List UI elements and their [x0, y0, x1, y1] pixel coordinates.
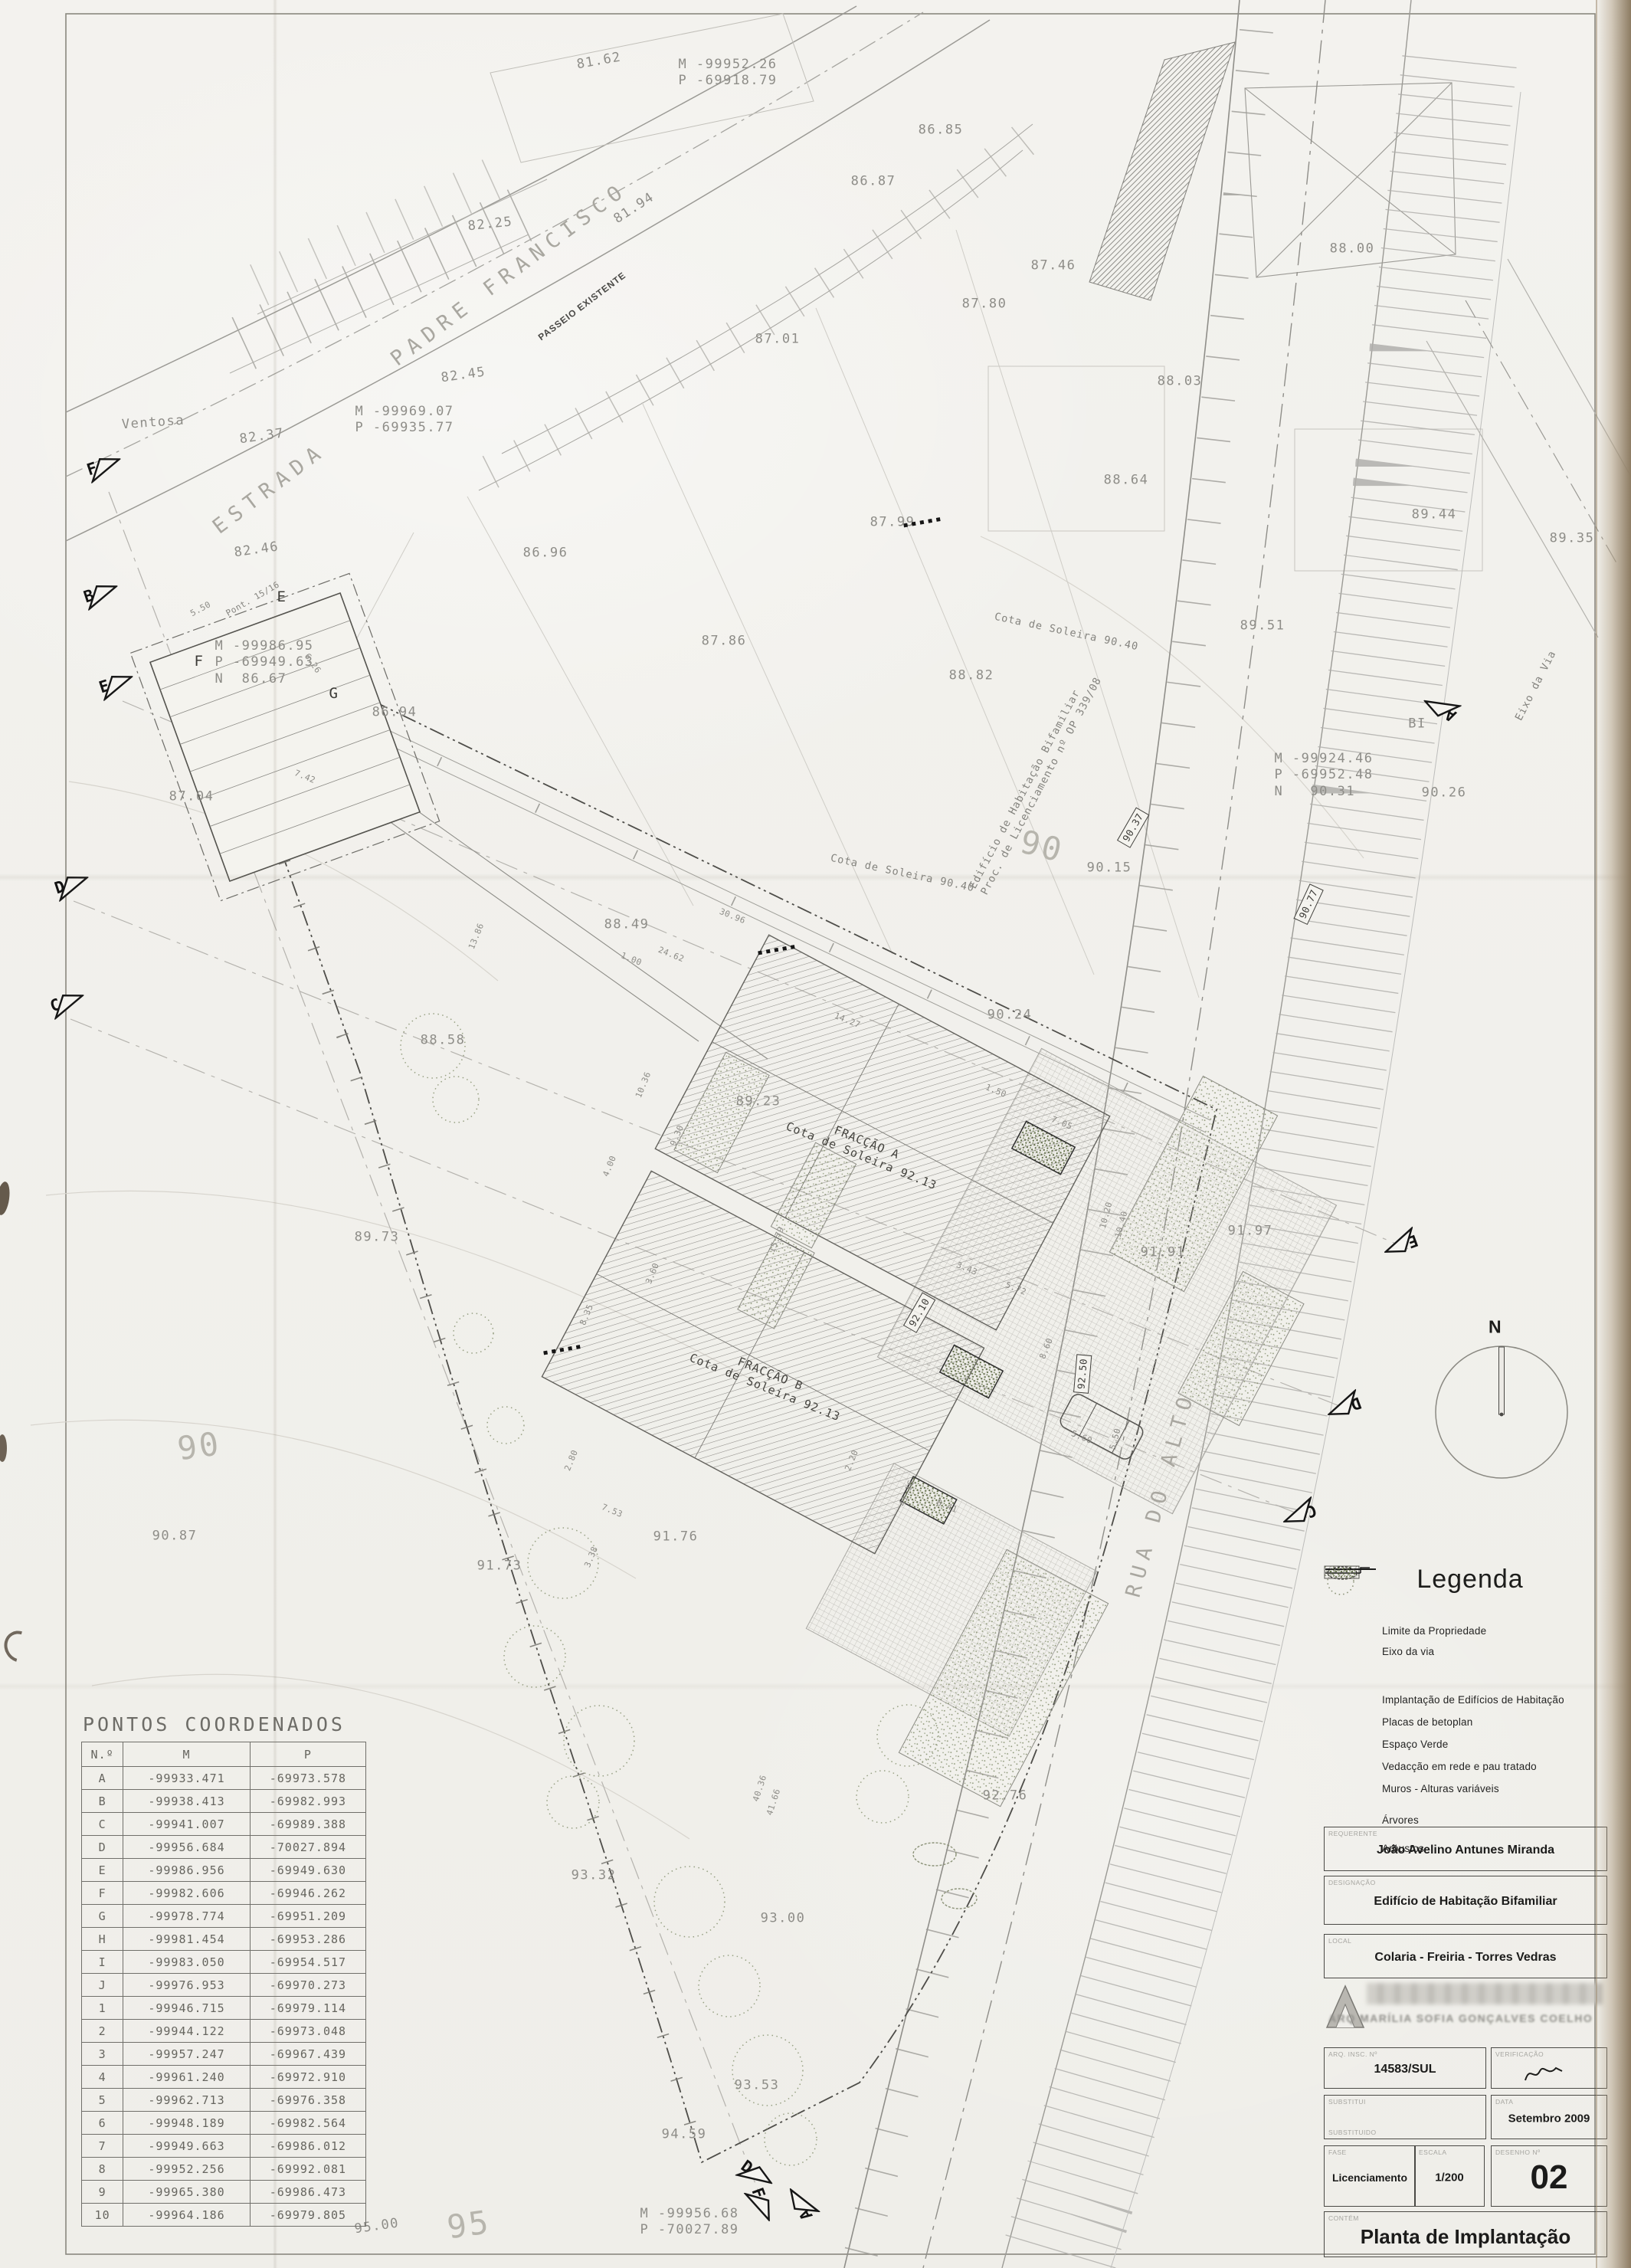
points-col-p: P	[250, 1742, 365, 1767]
scan-shadow-edge	[1596, 0, 1631, 2268]
plan-label: M -99952.26 P -69918.79	[678, 57, 777, 90]
table-cell: -69992.081	[250, 2158, 365, 2181]
plan-label: 91.73	[477, 1558, 522, 1574]
plan-label: G	[329, 685, 339, 703]
plan-label: 89.23	[736, 1093, 781, 1109]
plan-label: M -99956.68 P -70027.89	[640, 2206, 739, 2239]
north-arrow	[1436, 1346, 1567, 1478]
table-cell: -99965.380	[123, 2181, 251, 2204]
requerente-label: REQUERENTE	[1328, 1830, 1377, 1837]
table-cell: -70027.894	[250, 1836, 365, 1859]
requerente-box: REQUERENTE João Avelino Antunes Miranda	[1324, 1827, 1607, 1871]
table-row: 9-99965.380-69986.473	[82, 2181, 366, 2204]
table-row: 3-99957.247-69967.439	[82, 2043, 366, 2066]
plan-label: 93.32	[572, 1867, 617, 1883]
table-cell: -99961.240	[123, 2066, 251, 2089]
legend-item-label: Eixo da via	[1382, 1646, 1434, 1657]
plan-label: 87.04	[169, 788, 215, 805]
table-cell: -99952.256	[123, 2158, 251, 2181]
legend-item: Implantação de Edifícios de Habitação	[1324, 1690, 1616, 1710]
plan-label: M -99924.46 P -69952.48 N 90.31	[1274, 751, 1373, 800]
designacao-box: DESIGNAÇÃO Edifício de Habitação Bifamil…	[1324, 1876, 1607, 1925]
verificacao-label: VERIFICAÇÃO	[1495, 2050, 1544, 2058]
architect-stamp-name: ARQ MARÍLIA SOFIA GONÇALVES COELHO	[1328, 2012, 1604, 2024]
legend-item: Vedacção em rede e pau tratado	[1324, 1756, 1616, 1777]
arq-insc-value: 14583/SUL	[1325, 2063, 1485, 2076]
escala-label: ESCALA	[1419, 2148, 1447, 2156]
table-row: 4-99961.240-69972.910	[82, 2066, 366, 2089]
plan-label: 89.44	[1412, 506, 1457, 523]
plan-label: 87.86	[702, 633, 747, 649]
desenho-box: DESENHO Nº 02	[1491, 2145, 1607, 2207]
plan-label: 91.76	[653, 1529, 699, 1545]
escala-value: 1/200	[1415, 2171, 1484, 2184]
table-cell: -99949.663	[123, 2135, 251, 2158]
points-table: N.º M P A-99933.471-69973.578B-99938.413…	[81, 1742, 366, 2227]
table-cell: 7	[82, 2135, 123, 2158]
table-cell: -69986.473	[250, 2181, 365, 2204]
plan-label: 86.87	[851, 173, 896, 189]
points-table-title: PONTOS COORDENADOS	[83, 1713, 366, 1735]
legend-item-label: Placas de betoplan	[1382, 1716, 1472, 1728]
legend-item-label: Vedacção em rede e pau tratado	[1382, 1761, 1537, 1772]
designacao-label: DESIGNAÇÃO	[1328, 1879, 1376, 1886]
table-cell: -99964.186	[123, 2204, 251, 2227]
plan-label: 86.96	[523, 545, 568, 561]
desenho-value: 02	[1492, 2158, 1606, 2197]
plan-label: 89.51	[1240, 618, 1285, 634]
table-cell: 3	[82, 2043, 123, 2066]
sidewalk-passeio	[479, 124, 1033, 490]
plan-label: BI	[1408, 716, 1426, 732]
plan-label: 88.58	[421, 1032, 466, 1048]
contem-label: CONTÉM	[1328, 2214, 1359, 2222]
table-cell: -99941.007	[123, 1813, 251, 1836]
arq-insc-box: ARQ. INSC. Nº 14583/SUL	[1324, 2047, 1486, 2089]
table-cell: -69982.993	[250, 1790, 365, 1813]
plan-label: 87.46	[1031, 257, 1076, 274]
local-value: Colaria - Freiria - Torres Vedras	[1325, 1951, 1606, 1965]
verification-signature	[1519, 2059, 1573, 2085]
table-cell: -99957.247	[123, 2043, 251, 2066]
table-cell: F	[82, 1882, 123, 1905]
table-row: 10-99964.186-69979.805	[82, 2204, 366, 2227]
stamp-blurred-header	[1367, 1983, 1603, 2004]
plan-label: 90.24	[987, 1007, 1033, 1023]
plan-label: 91.91	[1141, 1244, 1186, 1260]
table-cell: 4	[82, 2066, 123, 2089]
plan-label: 88.64	[1104, 472, 1149, 488]
table-cell: A	[82, 1767, 123, 1790]
table-cell: 8	[82, 2158, 123, 2181]
table-row: 8-99952.256-69992.081	[82, 2158, 366, 2181]
table-cell: -99946.715	[123, 1997, 251, 2020]
requerente-value: João Avelino Antunes Miranda	[1325, 1844, 1606, 1857]
contem-value: Planta de Implantação	[1325, 2225, 1606, 2249]
table-cell: -69979.805	[250, 2204, 365, 2227]
table-row: J-99976.953-69970.273	[82, 1974, 366, 1997]
points-col-m: M	[123, 1742, 251, 1767]
points-col-n: N.º	[82, 1742, 123, 1767]
legend-item-label: Implantação de Edifícios de Habitação	[1382, 1694, 1564, 1706]
title-block: REQUERENTE João Avelino Antunes Miranda …	[1324, 1817, 1609, 2251]
table-cell: 5	[82, 2089, 123, 2112]
table-cell: -99944.122	[123, 2020, 251, 2043]
table-row: 1-99946.715-69979.114	[82, 1997, 366, 2020]
table-cell: -69972.910	[250, 2066, 365, 2089]
plan-label: 86.85	[919, 122, 964, 138]
table-cell: -69986.012	[250, 2135, 365, 2158]
legend-item: Eixo da via	[1324, 1641, 1616, 1662]
contem-box: CONTÉM Planta de Implantação	[1324, 2211, 1607, 2257]
table-cell: -69976.358	[250, 2089, 365, 2112]
fase-box: FASE Licenciamento	[1324, 2145, 1416, 2207]
fase-label: FASE	[1328, 2148, 1347, 2156]
table-row: 5-99962.713-69976.358	[82, 2089, 366, 2112]
plan-label: M -99969.07 P -69935.77	[355, 404, 454, 437]
table-cell: I	[82, 1951, 123, 1974]
table-cell: D	[82, 1836, 123, 1859]
plan-label: 89.73	[355, 1229, 400, 1245]
table-cell: H	[82, 1928, 123, 1951]
local-label: LOCAL	[1328, 1937, 1351, 1945]
plan-label: 95	[444, 2202, 493, 2248]
plan-label: F	[195, 653, 205, 671]
table-row: I-99983.050-69954.517	[82, 1951, 366, 1974]
plan-label: 91.97	[1228, 1223, 1273, 1239]
substituido-label: SUBSTITUIDO	[1328, 2129, 1377, 2136]
table-row: B-99938.413-69982.993	[82, 1790, 366, 1813]
table-cell: -69967.439	[250, 2043, 365, 2066]
plan-label: 87.80	[962, 296, 1007, 312]
substitui-box: SUBSTITUI SUBSTITUIDO	[1324, 2095, 1486, 2139]
plan-label: 93.53	[735, 2077, 780, 2093]
arq-insc-label: ARQ. INSC. Nº	[1328, 2050, 1377, 2058]
data-value: Setembro 2009	[1492, 2112, 1606, 2125]
paper-crease	[0, 1683, 1631, 1690]
table-row: F-99982.606-69946.262	[82, 1882, 366, 1905]
table-cell: -69989.388	[250, 1813, 365, 1836]
table-cell: 10	[82, 2204, 123, 2227]
plan-label: 90.26	[1422, 785, 1467, 801]
table-row: 7-99949.663-69986.012	[82, 2135, 366, 2158]
table-cell: 6	[82, 2112, 123, 2135]
plan-label: 94.59	[662, 2126, 707, 2142]
plan-label: 93.00	[761, 1910, 806, 1926]
paper-crease	[0, 873, 1631, 881]
legend-item: Espaço Verde	[1324, 1734, 1616, 1755]
plan-label: 88.82	[949, 667, 994, 683]
table-cell: 9	[82, 2181, 123, 2204]
plan-label: 88.49	[604, 916, 650, 932]
plan-label: 92.76	[983, 1788, 1028, 1804]
table-cell: -69979.114	[250, 1997, 365, 2020]
neighbour-buildings	[336, 14, 1482, 998]
legend-item: Placas de betoplan	[1324, 1712, 1616, 1732]
legend-item-label: Muros - Alturas variáveis	[1382, 1783, 1499, 1794]
table-cell: 2	[82, 2020, 123, 2043]
table-cell: C	[82, 1813, 123, 1836]
scanned-site-plan-sheet: 81.62M -99952.26 P -69918.7986.8586.8782…	[0, 0, 1631, 2268]
plan-label: 90	[175, 1424, 223, 1470]
plan-label: 90.87	[152, 1528, 198, 1544]
desenho-label: DESENHO Nº	[1495, 2148, 1541, 2156]
table-cell: -99981.454	[123, 1928, 251, 1951]
table-cell: -99933.471	[123, 1767, 251, 1790]
plan-label: N	[1489, 1316, 1502, 1339]
table-cell: -99948.189	[123, 2112, 251, 2135]
table-cell: -69973.048	[250, 2020, 365, 2043]
table-row: D-99956.684-70027.894	[82, 1836, 366, 1859]
table-cell: -99983.050	[123, 1951, 251, 1974]
local-box: LOCAL Colaria - Freiria - Torres Vedras	[1324, 1934, 1607, 1978]
plan-label: 88.00	[1330, 241, 1375, 257]
plan-label: 88.03	[1158, 373, 1203, 389]
table-cell: J	[82, 1974, 123, 1997]
data-label: DATA	[1495, 2098, 1513, 2106]
table-row: C-99941.007-69989.388	[82, 1813, 366, 1836]
table-cell: -99962.713	[123, 2089, 251, 2112]
table-row: G-99978.774-69951.209	[82, 1905, 366, 1928]
legend-item: Muros - Alturas variáveis	[1324, 1778, 1616, 1799]
plan-label: 87.01	[755, 331, 801, 347]
legend-item: Limite da Propriedade	[1324, 1621, 1616, 1641]
table-cell: -99978.774	[123, 1905, 251, 1928]
plan-label: E	[277, 588, 287, 607]
table-row: H-99981.454-69953.286	[82, 1928, 366, 1951]
data-box: DATA Setembro 2009	[1491, 2095, 1607, 2139]
legend-item-label: Limite da Propriedade	[1382, 1625, 1486, 1637]
table-cell: -69970.273	[250, 1974, 365, 1997]
table-cell: B	[82, 1790, 123, 1813]
table-cell: -69982.564	[250, 2112, 365, 2135]
table-cell: G	[82, 1905, 123, 1928]
table-cell: E	[82, 1859, 123, 1882]
fase-value: Licenciamento	[1325, 2171, 1415, 2184]
designacao-value: Edifício de Habitação Bifamiliar	[1325, 1895, 1606, 1909]
table-cell: -99976.953	[123, 1974, 251, 1997]
table-cell: -99956.684	[123, 1836, 251, 1859]
table-cell: -99938.413	[123, 1790, 251, 1813]
verificacao-box: VERIFICAÇÃO	[1491, 2047, 1607, 2089]
paper-fold	[273, 0, 277, 2268]
table-cell: 1	[82, 1997, 123, 2020]
table-cell: -69953.286	[250, 1928, 365, 1951]
plan-label: 89.35	[1550, 530, 1595, 546]
existing-building-stairs	[130, 573, 439, 900]
table-cell: -99986.956	[123, 1859, 251, 1882]
plan-label: M -99986.95 P -69949.63 N 86.67	[215, 638, 313, 687]
shrubs	[913, 1843, 977, 1909]
escala-box: ESCALA 1/200	[1414, 2145, 1485, 2207]
legend-panel: Legenda Limite da PropriedadeEixo da via…	[1324, 1565, 1616, 1859]
table-row: A-99933.471-69973.578	[82, 1767, 366, 1790]
substitui-label: SUBSTITUI	[1328, 2098, 1366, 2106]
table-row: E-99986.956-69949.630	[82, 1859, 366, 1882]
table-cell: -99982.606	[123, 1882, 251, 1905]
table-cell: -69951.209	[250, 1905, 365, 1928]
plan-label: 86.94	[372, 704, 418, 720]
table-row: 6-99948.189-69982.564	[82, 2112, 366, 2135]
table-cell: -69946.262	[250, 1882, 365, 1905]
table-cell: -69954.517	[250, 1951, 365, 1974]
table-row: 2-99944.122-69973.048	[82, 2020, 366, 2043]
legend-item-label: Espaço Verde	[1382, 1739, 1448, 1750]
table-cell: -69973.578	[250, 1767, 365, 1790]
coordinate-points-panel: PONTOS COORDENADOS N.º M P A-99933.471-6…	[81, 1713, 366, 2227]
table-cell: -69949.630	[250, 1859, 365, 1882]
